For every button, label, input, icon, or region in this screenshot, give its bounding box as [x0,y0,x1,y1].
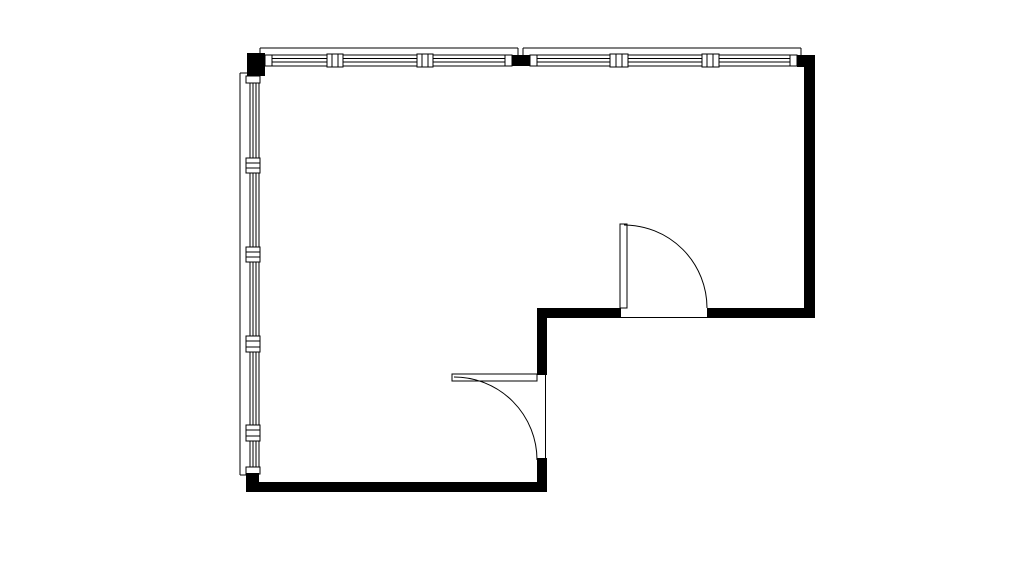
window-band-top-left [265,55,512,66]
window-mullion [417,54,433,67]
window-end-cap [246,76,260,83]
window-end-cap [246,467,260,474]
window-end-cap [505,55,512,66]
window-mullion [702,54,719,67]
window-mullion [246,247,260,262]
doors-layer [452,224,707,460]
window-mullion [610,54,628,67]
door-lower-room-swing-arc [454,377,537,460]
window-mullion [246,158,260,173]
door-upper-room-leaf [620,224,627,308]
floor-plan [0,0,1026,576]
window-end-cap [265,55,272,66]
window-end-cap [790,55,797,66]
wall-step-vertical-upper [537,318,547,375]
window-mullion [327,54,343,67]
floor-plan-canvas [0,0,1026,576]
window-bands-layer [250,55,797,474]
window-band-top-right [530,55,797,66]
window-band-left [250,76,259,474]
wall-mid-horizontal-right [707,308,815,318]
window-mullion [246,425,260,441]
window-end-cap [530,55,537,66]
door-upper-room-swing-arc [624,225,707,308]
wall-mid-horizontal-left [537,308,621,318]
window-mullion [246,336,260,352]
wall-bottom [246,482,547,492]
wall-pier-top-middle [512,55,530,66]
glazing-lines-layer [253,59,797,475]
wall-corner-top-left [247,53,265,76]
wall-right [804,55,815,318]
walls-layer [246,53,815,492]
wall-corner-bottom-left [246,473,259,492]
